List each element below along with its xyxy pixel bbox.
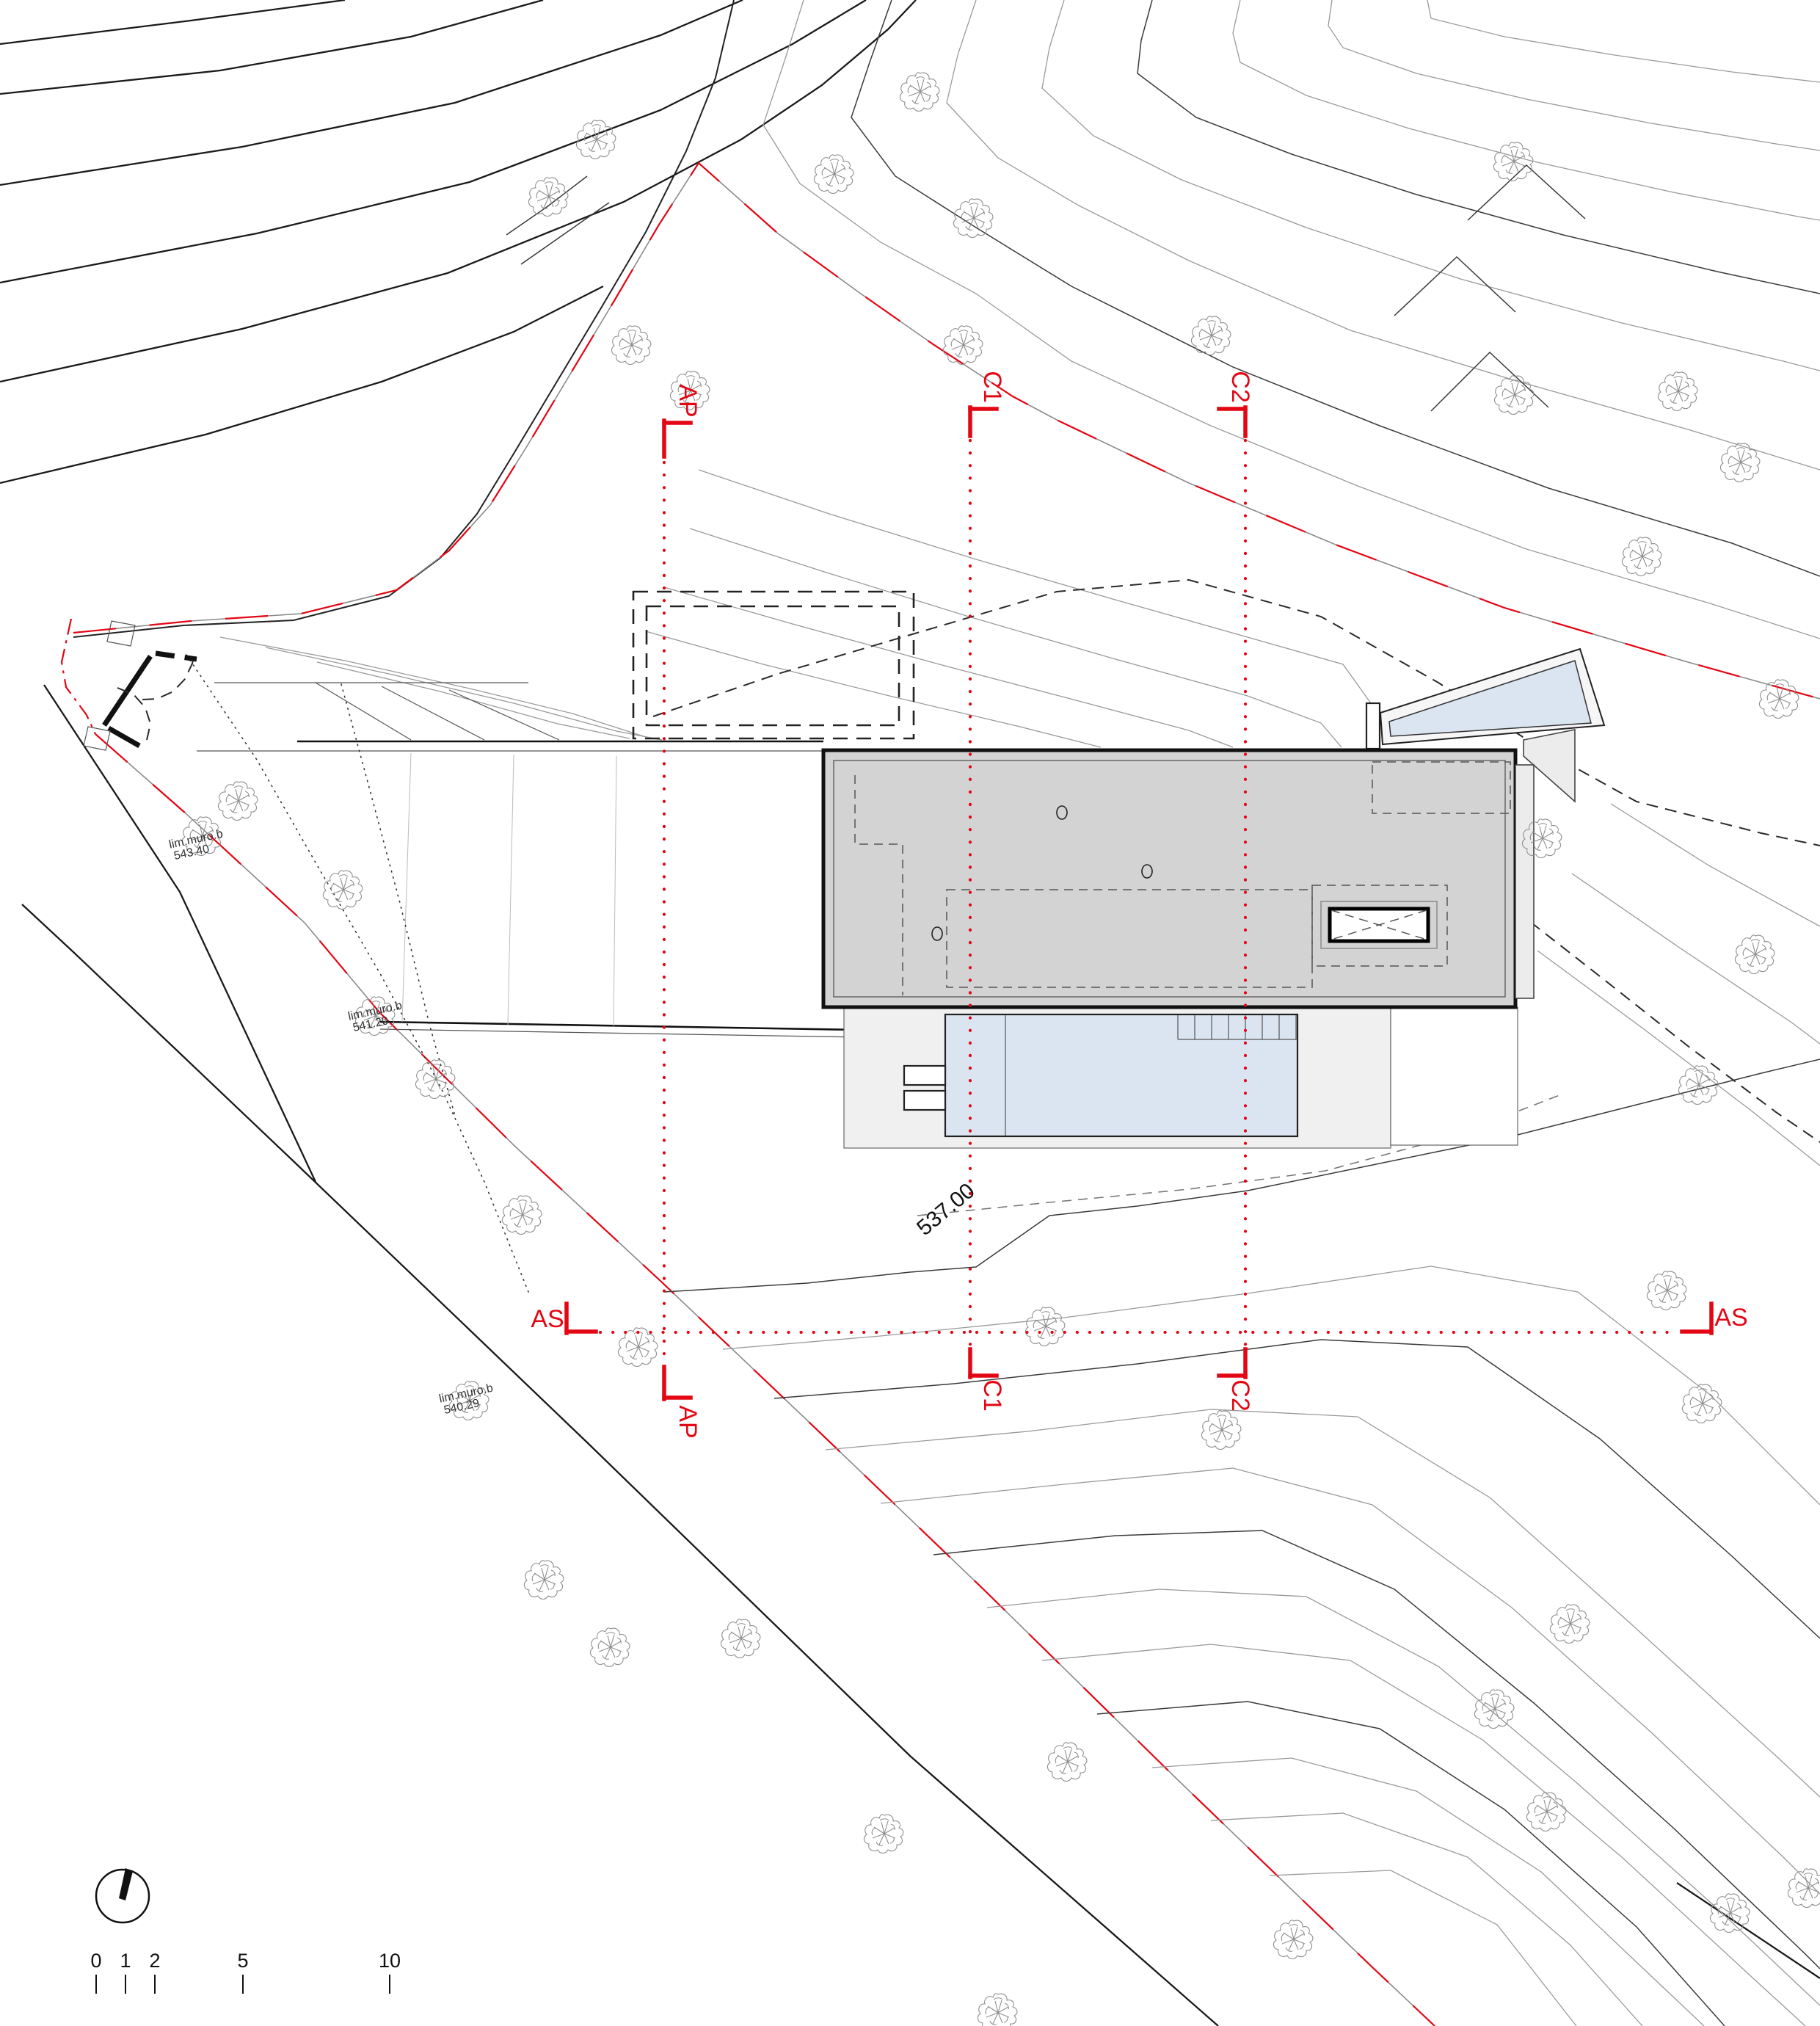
section-label-C1: C1 — [978, 371, 1006, 402]
tree-icon — [1735, 935, 1774, 974]
contour-line — [987, 1589, 1820, 2005]
contour-line — [1427, 0, 1820, 82]
scale-number: 10 — [379, 1950, 401, 1972]
contour-line — [1042, 1644, 1805, 2026]
tree-icon — [1201, 1411, 1240, 1450]
tree-icon — [1025, 1307, 1064, 1346]
site-plan-page: APAPC1C1C2C2ASAS537.00lim.muro.b543.40li… — [0, 0, 1820, 2026]
side-slab — [1515, 765, 1534, 998]
contour-line — [1328, 0, 1820, 150]
tree-icon — [864, 1815, 903, 1853]
tree-icon — [1682, 1384, 1721, 1423]
tree-icon — [1273, 1920, 1312, 1959]
site-boundary-red — [73, 163, 1820, 699]
road-edge — [0, 0, 743, 185]
tree-icon — [900, 73, 939, 112]
contour-line — [933, 1531, 1820, 1969]
contour-line — [690, 529, 1342, 747]
tree-icon — [1658, 372, 1697, 411]
tree-icon — [978, 1994, 1016, 2026]
tree-icon — [721, 1619, 760, 1658]
road-edge — [1677, 1883, 1820, 1978]
tree-icon — [218, 782, 257, 821]
contour-line — [1097, 1702, 1725, 2026]
tree-icon — [502, 1196, 541, 1235]
contour-line — [723, 1266, 1820, 1505]
gate-wall — [104, 656, 150, 725]
tree-icon — [1550, 1605, 1589, 1644]
ridge-line — [73, 0, 734, 637]
gate-wall — [109, 728, 139, 746]
gate-post — [84, 727, 110, 750]
site-plan-drawing: APAPC1C1C2C2ASAS537.00lim.muro.b543.40li… — [0, 0, 1820, 2026]
section-label-C2: C2 — [1226, 1379, 1254, 1411]
contour-line — [1572, 874, 1820, 1044]
deck — [1391, 1007, 1518, 1145]
tree-icon — [1788, 1869, 1820, 1908]
road-edge — [44, 685, 316, 1182]
gate-swing — [142, 656, 194, 700]
gate-wall-dashed — [156, 653, 197, 659]
contour-line — [947, 0, 1820, 470]
section-label-C1: C1 — [978, 1379, 1006, 1411]
tree-icon — [1678, 1066, 1717, 1105]
contour-switchback — [1394, 257, 1515, 316]
proposed-outline-dashed — [633, 592, 914, 738]
tree-icon — [1047, 1743, 1086, 1782]
contour-line — [317, 662, 630, 738]
survey-line — [186, 655, 528, 1292]
contour-line — [266, 647, 662, 740]
garden-division — [614, 756, 616, 1026]
garden-division — [402, 753, 411, 1022]
road-edge — [0, 286, 603, 483]
tree-icon — [953, 199, 992, 238]
contour-line — [1211, 1813, 1642, 2026]
tree-icon — [528, 178, 567, 217]
building-roof — [823, 750, 1515, 1007]
proposed-outline-dashed — [647, 606, 899, 725]
tree-icon — [1759, 680, 1798, 719]
scale-number: 1 — [120, 1950, 131, 1972]
contour-line — [664, 587, 1233, 747]
contour-line — [851, 0, 1820, 576]
planter-box — [904, 1066, 945, 1085]
contour-switchback — [1431, 352, 1548, 411]
survey-line — [341, 684, 455, 1116]
tree-icon — [590, 1628, 629, 1667]
garden-division — [508, 755, 514, 1025]
scale-number: 0 — [90, 1950, 101, 1972]
retaining-wall — [380, 1022, 904, 1031]
road-edge — [0, 0, 916, 382]
section-label-AS: AS — [531, 1305, 564, 1333]
contour-line — [1270, 1870, 1576, 2026]
tree-icon — [943, 326, 982, 365]
tree-icon — [1622, 537, 1661, 576]
tree-icon — [415, 1060, 454, 1099]
tree-icon — [1493, 142, 1532, 181]
site-boundary — [73, 163, 1820, 699]
tree-icon — [1647, 1271, 1686, 1310]
wall-post — [1366, 703, 1380, 749]
scale-number: 5 — [237, 1950, 248, 1972]
contour-line — [826, 1409, 1820, 1797]
tree-icon — [1526, 1793, 1565, 1831]
contour-line — [1042, 0, 1820, 371]
road-edge — [0, 0, 345, 44]
garden-line — [316, 683, 411, 740]
tree-icon — [1494, 376, 1533, 415]
north-arrow-needle — [119, 1868, 133, 1900]
tree-icon — [814, 155, 853, 194]
plan-layers: APAPC1C1C2C2ASAS537.00lim.muro.b543.40li… — [0, 0, 1820, 2026]
planter-box — [904, 1091, 945, 1110]
garden-line — [449, 690, 559, 740]
hidden-wall-dashed — [1515, 910, 1820, 1142]
tree-icon — [1720, 443, 1759, 482]
section-label-AP: AP — [674, 1405, 702, 1438]
tree-icon — [1474, 1690, 1513, 1729]
road-edge — [0, 0, 543, 94]
tree-icon — [524, 1561, 563, 1600]
scale-number: 2 — [149, 1950, 160, 1972]
contour-line — [1152, 1758, 1704, 2026]
contour-line — [1611, 804, 1820, 926]
section-label-C2: C2 — [1226, 371, 1254, 402]
contour-line — [881, 1468, 1820, 1894]
section-label-AP: AP — [674, 384, 702, 417]
contour-line — [774, 1340, 1820, 1638]
contour-line — [1537, 951, 1820, 1166]
tree-icon — [611, 326, 650, 365]
retaining-wall-edge — [380, 1029, 904, 1038]
section-label-AS: AS — [1714, 1304, 1747, 1332]
contour-line — [1233, 0, 1820, 220]
tree-icon — [323, 871, 362, 909]
